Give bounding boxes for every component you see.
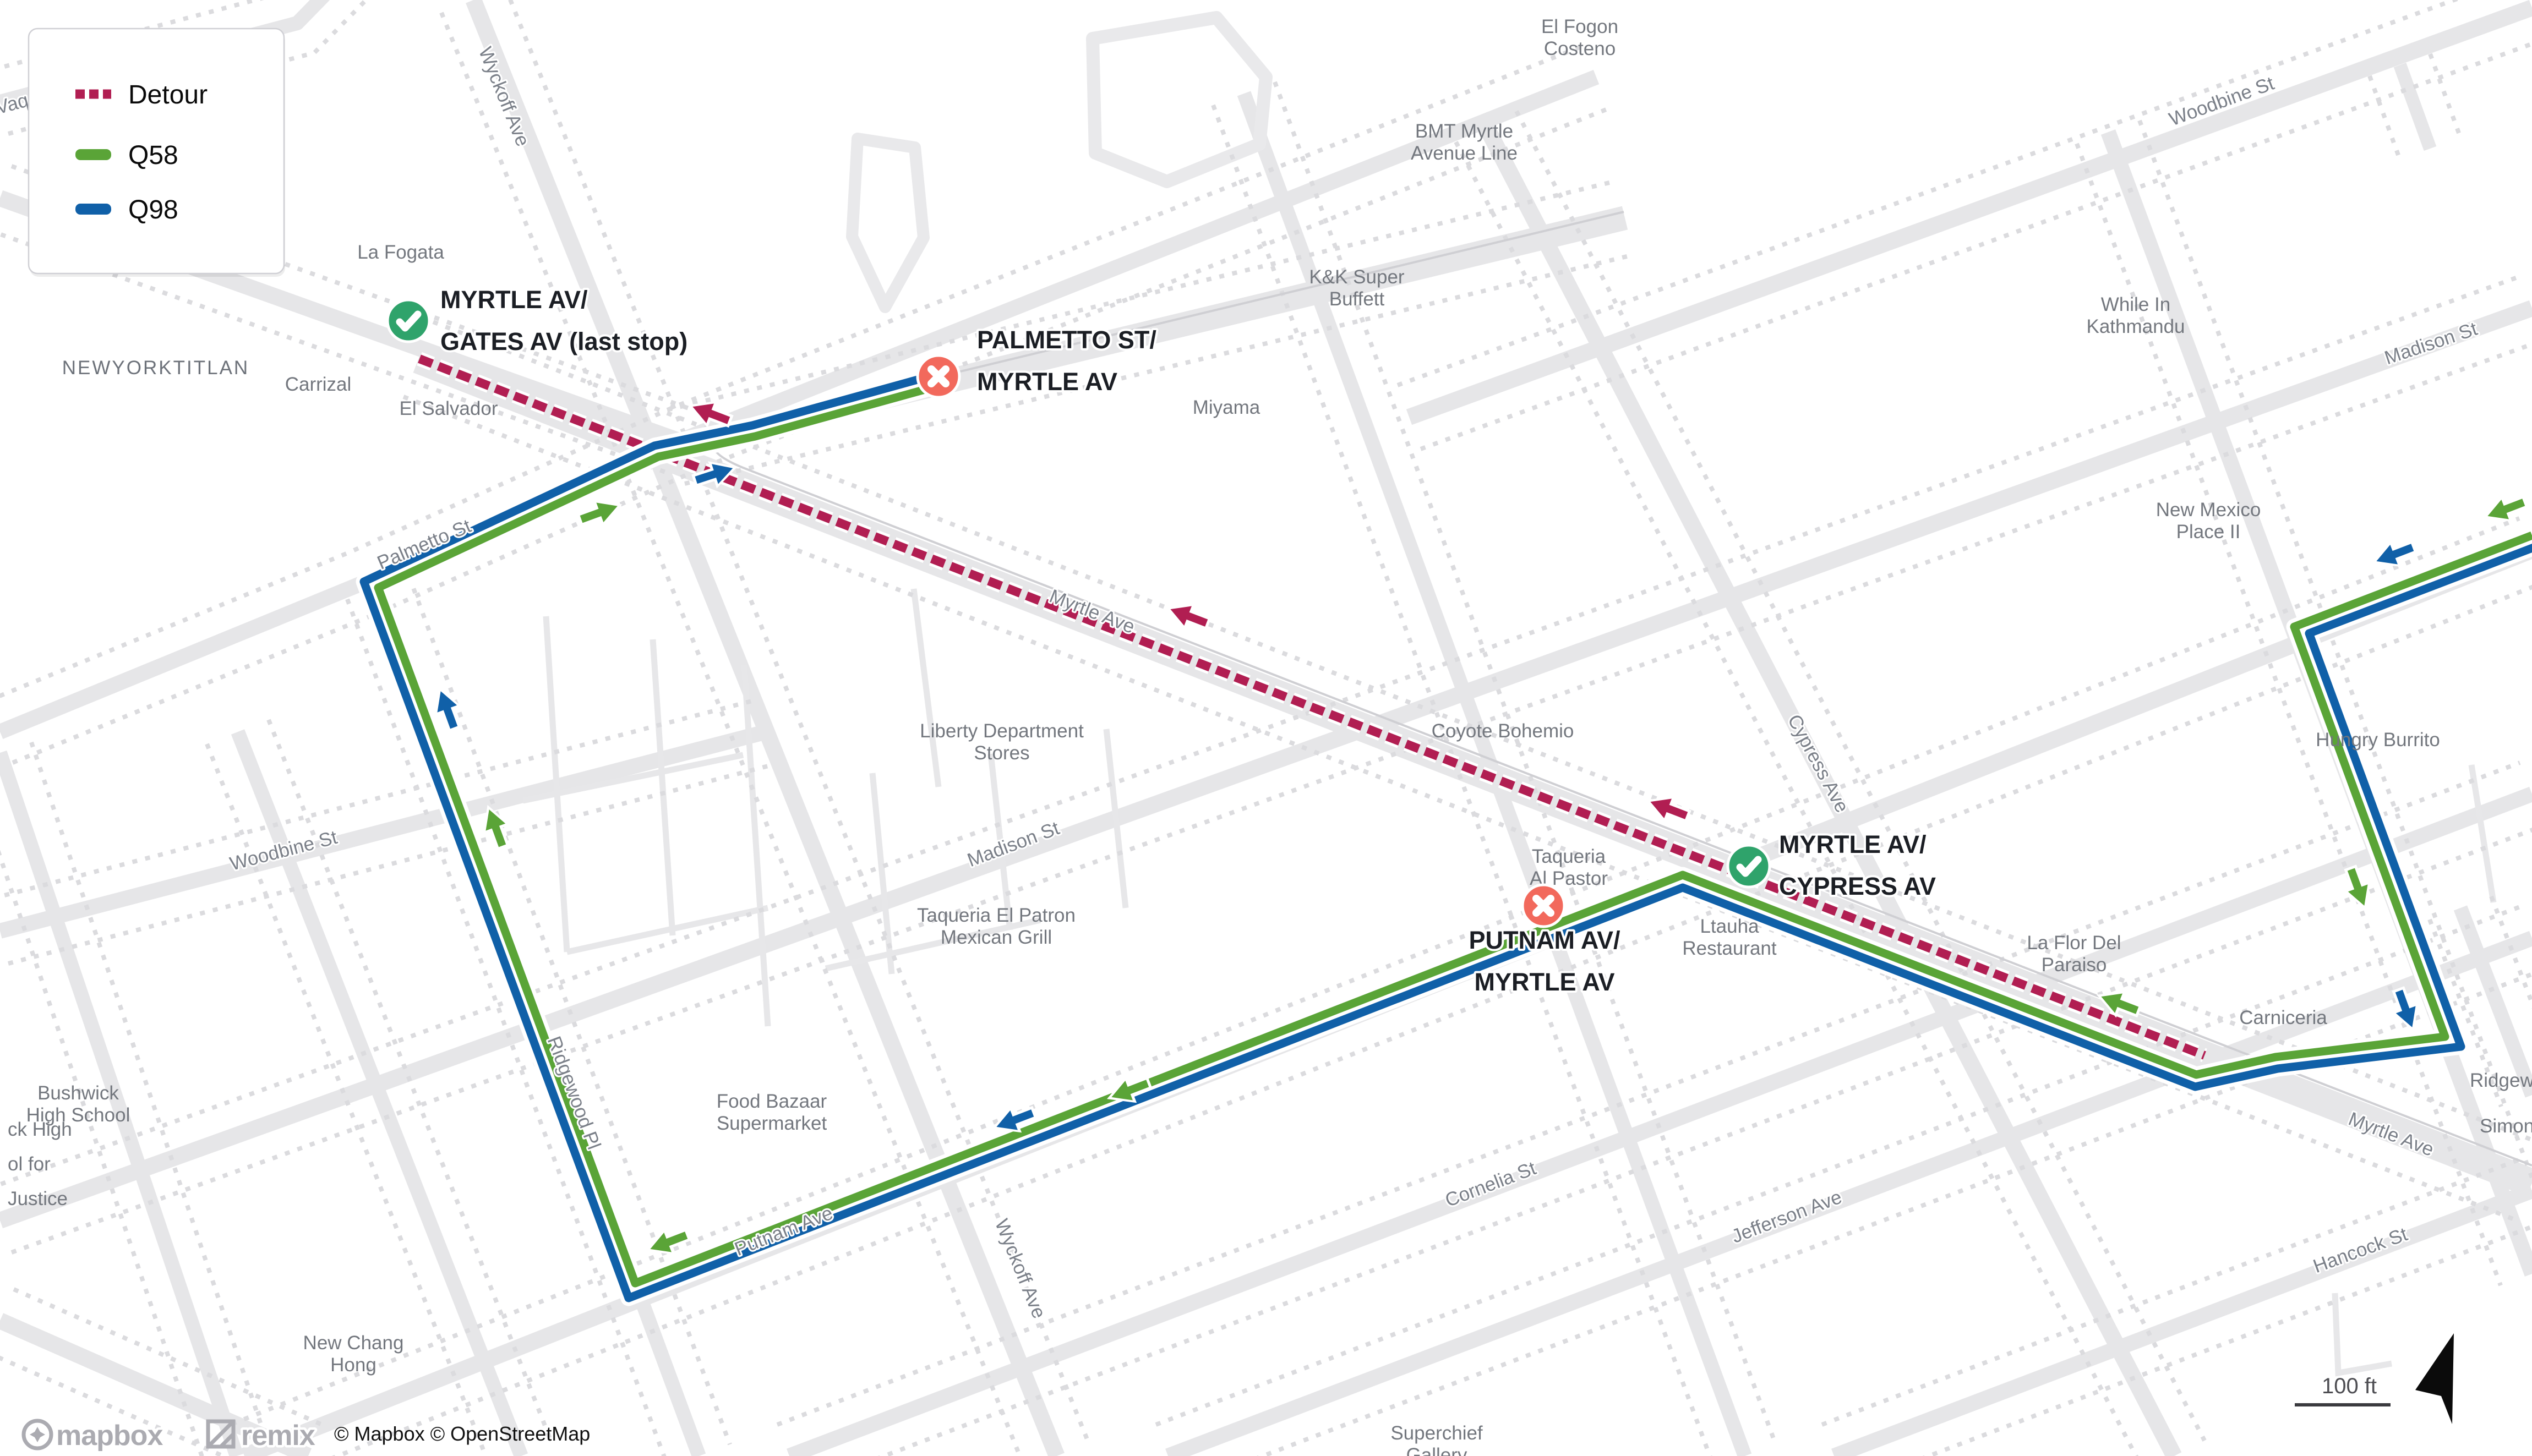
svg-text:mapbox: mapbox: [56, 1420, 163, 1452]
svg-text:© Mapbox © OpenStreetMap: © Mapbox © OpenStreetMap: [334, 1422, 590, 1445]
svg-text:Supermarket: Supermarket: [717, 1113, 827, 1134]
svg-text:remix: remix: [241, 1420, 315, 1452]
svg-text:Buffett: Buffett: [1329, 288, 1385, 310]
svg-text:Restaurant: Restaurant: [1682, 938, 1776, 959]
svg-text:ol for: ol for: [8, 1153, 51, 1175]
svg-text:Kathmandu: Kathmandu: [2086, 316, 2185, 337]
svg-text:NEWYORKTITLAN: NEWYORKTITLAN: [62, 357, 249, 379]
svg-text:Miyama: Miyama: [1193, 397, 1260, 418]
svg-text:Hong: Hong: [330, 1354, 376, 1376]
svg-text:Taqueria: Taqueria: [1532, 846, 1606, 867]
svg-text:New Mexico: New Mexico: [2156, 499, 2261, 521]
svg-text:Ridgewood: Ridgewood: [2470, 1070, 2532, 1091]
svg-text:La Flor Del: La Flor Del: [2027, 932, 2121, 954]
svg-text:Paraiso: Paraiso: [2042, 954, 2107, 976]
svg-text:Detour: Detour: [128, 80, 208, 110]
svg-text:BMT Myrtle: BMT Myrtle: [1415, 121, 1513, 142]
svg-text:K&K Super: K&K Super: [1309, 266, 1404, 288]
svg-text:Hungry Burrito: Hungry Burrito: [2316, 729, 2440, 751]
svg-text:Superchief: Superchief: [1390, 1422, 1483, 1444]
svg-text:While In: While In: [2101, 294, 2170, 315]
svg-text:Bushwick: Bushwick: [37, 1082, 119, 1104]
svg-text:ck High: ck High: [8, 1119, 72, 1140]
svg-text:Coyote Bohemio: Coyote Bohemio: [1432, 720, 1574, 742]
svg-text:Carniceria: Carniceria: [2239, 1007, 2327, 1028]
svg-text:GATES AV (last stop): GATES AV (last stop): [440, 327, 687, 355]
svg-text:Taqueria El Patron: Taqueria El Patron: [917, 905, 1076, 926]
svg-text:Q98: Q98: [128, 195, 178, 225]
svg-text:Place II: Place II: [2176, 521, 2241, 543]
svg-text:PALMETTO ST/: PALMETTO ST/: [977, 326, 1156, 354]
svg-text:MYRTLE AV: MYRTLE AV: [977, 368, 1117, 396]
svg-text:Simon’s: Simon’s: [2480, 1115, 2532, 1137]
svg-text:Q58: Q58: [128, 141, 178, 170]
svg-text:MYRTLE AV/: MYRTLE AV/: [440, 286, 588, 314]
svg-text:Costeno: Costeno: [1544, 38, 1616, 59]
svg-text:Gallery: Gallery: [1406, 1444, 1467, 1456]
svg-text:El Fogon: El Fogon: [1541, 16, 1618, 37]
svg-text:Justice: Justice: [8, 1188, 68, 1209]
svg-text:Ltauha: Ltauha: [1700, 916, 1759, 937]
svg-text:MYRTLE AV/: MYRTLE AV/: [1779, 830, 1927, 858]
svg-text:MYRTLE AV: MYRTLE AV: [1475, 968, 1615, 996]
svg-text:PUTNAM AV/: PUTNAM AV/: [1469, 926, 1620, 954]
svg-text:El Salvador: El Salvador: [400, 398, 498, 419]
svg-text:New Chang: New Chang: [303, 1332, 404, 1354]
svg-text:La Fogata: La Fogata: [357, 242, 444, 263]
svg-text:Stores: Stores: [974, 742, 1029, 764]
svg-text:Avenue Line: Avenue Line: [1411, 143, 1518, 164]
svg-text:100 ft: 100 ft: [2322, 1374, 2377, 1398]
svg-text:CYPRESS AV: CYPRESS AV: [1779, 872, 1936, 900]
svg-text:Food Bazaar: Food Bazaar: [717, 1091, 827, 1112]
svg-text:Mexican Grill: Mexican Grill: [941, 927, 1052, 948]
svg-text:Liberty Department: Liberty Department: [920, 720, 1084, 742]
svg-text:Carrizal: Carrizal: [285, 374, 352, 395]
